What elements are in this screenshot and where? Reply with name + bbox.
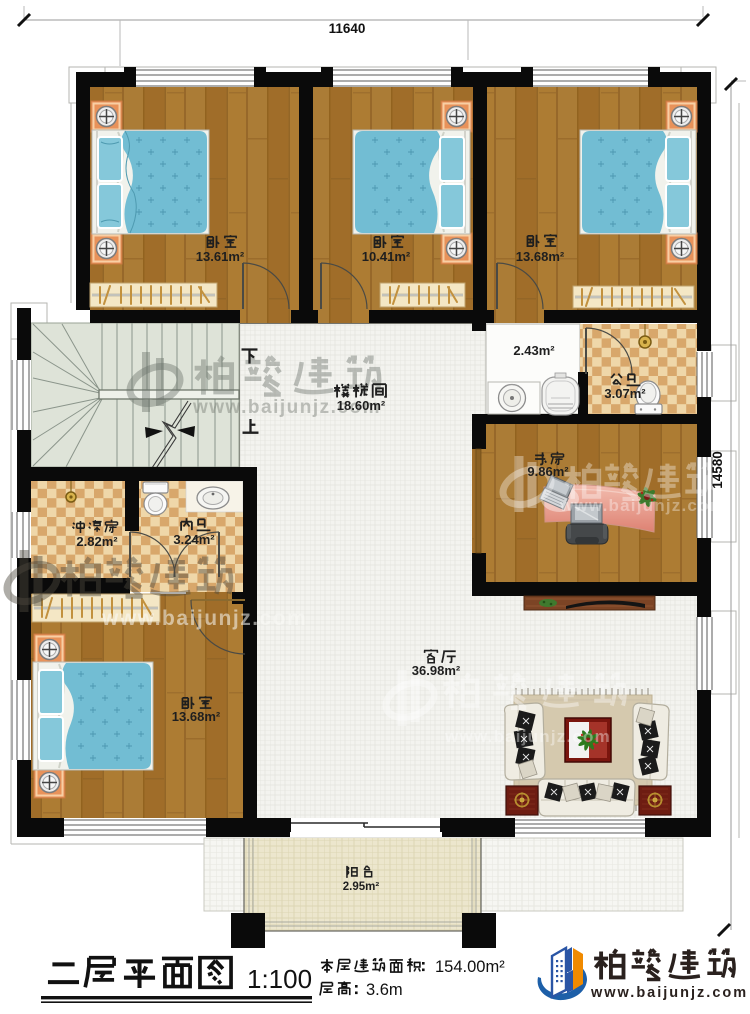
svg-text:www.baijunjz.com: www.baijunjz.com — [101, 607, 307, 630]
svg-text:3.07m²: 3.07m² — [604, 386, 646, 401]
svg-text:18.60m²: 18.60m² — [337, 398, 386, 413]
svg-text:www.baijunjz.com: www.baijunjz.com — [590, 985, 748, 1001]
svg-text:www.baijunjz.com: www.baijunjz.com — [559, 496, 726, 515]
svg-text:13.68m²: 13.68m² — [516, 249, 565, 264]
svg-text:14580: 14580 — [710, 451, 725, 489]
svg-text:13.68m²: 13.68m² — [172, 709, 221, 724]
svg-text:3.24m²: 3.24m² — [173, 532, 215, 547]
svg-text:2.43m²: 2.43m² — [513, 343, 555, 358]
svg-text:11640: 11640 — [329, 21, 366, 36]
svg-text:www.baijunjz.com: www.baijunjz.com — [444, 727, 611, 746]
svg-text:2.95m²: 2.95m² — [343, 881, 380, 893]
svg-text:36.98m²: 36.98m² — [412, 663, 461, 678]
svg-text:154.00m²: 154.00m² — [435, 958, 505, 976]
svg-text:13.61m²: 13.61m² — [196, 249, 245, 264]
svg-text:3.6m: 3.6m — [366, 981, 403, 999]
svg-text:10.41m²: 10.41m² — [362, 249, 411, 264]
svg-text:9.86m²: 9.86m² — [527, 464, 569, 479]
svg-text:2.82m²: 2.82m² — [76, 534, 118, 549]
svg-text:1:100: 1:100 — [247, 964, 312, 994]
